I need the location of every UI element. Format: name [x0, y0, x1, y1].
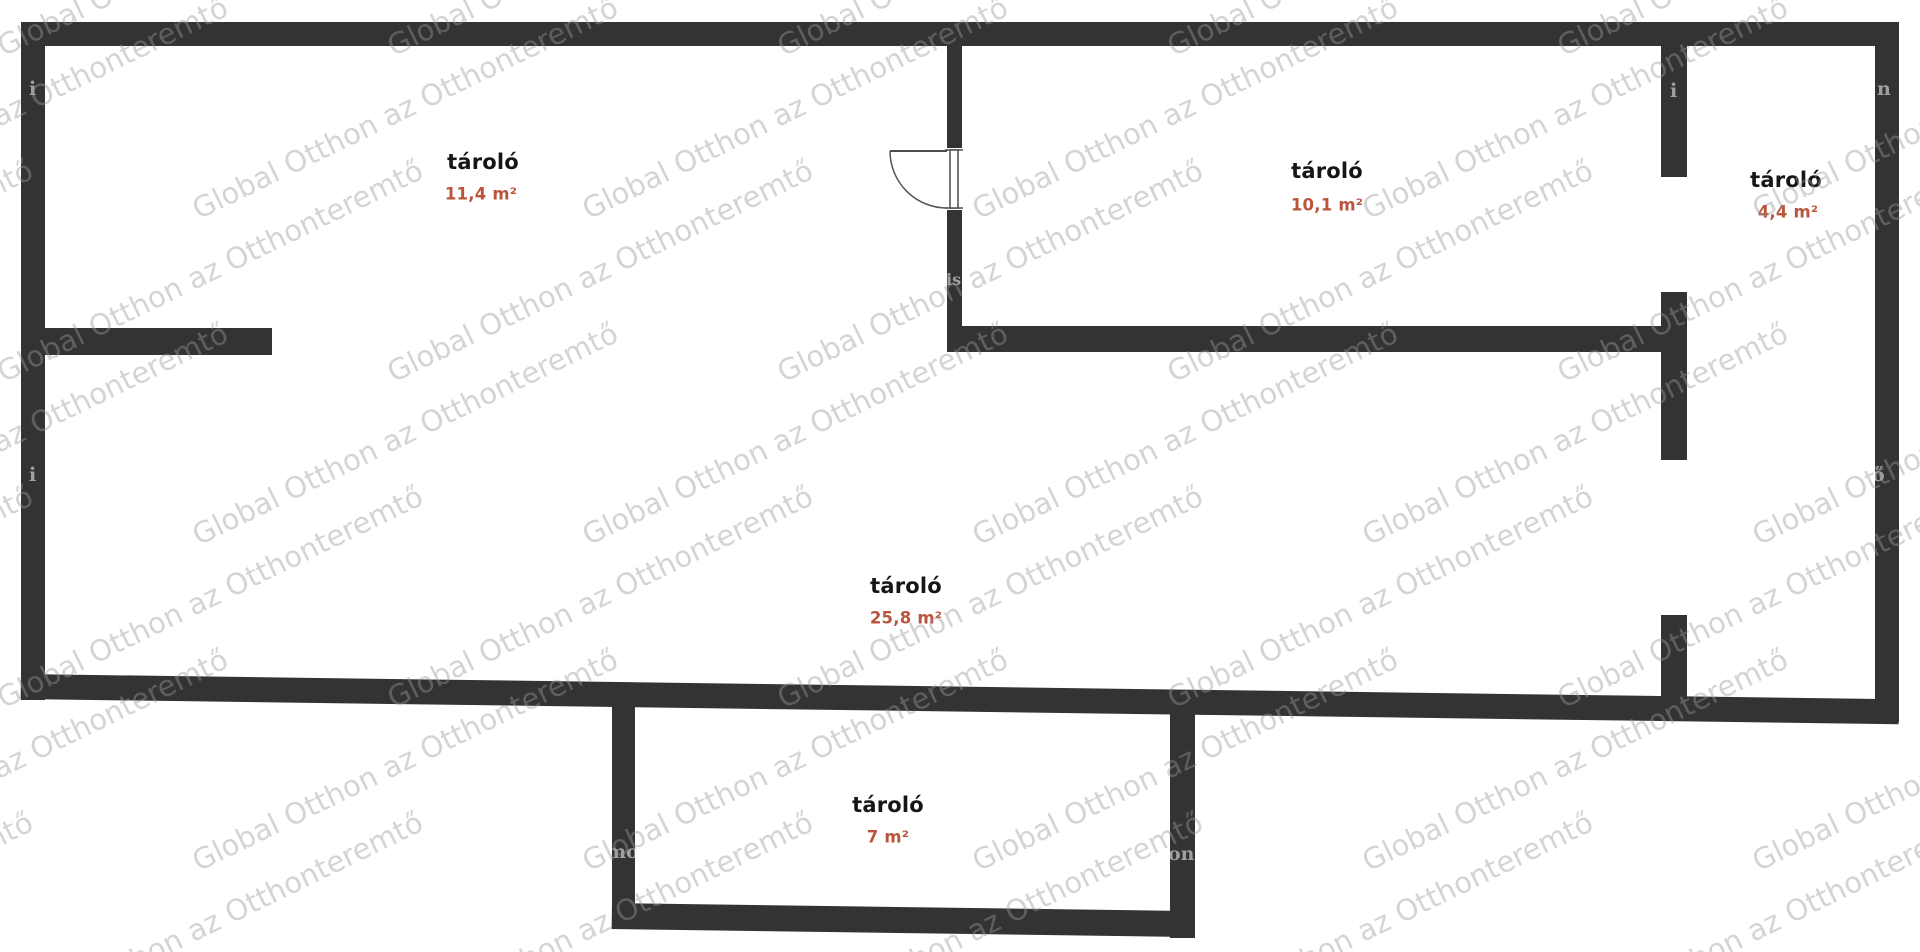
wall-watermark-fragment: ő — [1875, 466, 1885, 485]
wall-under-room-10-1 — [947, 326, 1687, 352]
watermark-text: Global Otthon az Otthonteremtő — [1162, 805, 1598, 952]
room-label-storage-10-1: tároló — [1291, 159, 1363, 183]
watermark-text: Global Otthon az Otthonteremtő — [1552, 153, 1920, 389]
wall-watermark-fragment: i — [1670, 82, 1677, 101]
wall-watermark-fragment: i — [29, 466, 36, 485]
wall-watermark-fragment: is — [947, 272, 961, 288]
wall-outer-top — [21, 22, 1899, 46]
room-name: tároló — [1750, 168, 1822, 192]
room-area-storage-25-8: 25,8 m² — [870, 609, 942, 628]
wall-watermark-fragment: mo — [612, 843, 635, 862]
wall-outer-left: i i — [21, 22, 45, 700]
watermark-text: Global Otthon az Otthonteremtő — [772, 479, 1208, 715]
wall-room7-left: mo — [612, 695, 635, 929]
door-frame — [950, 150, 958, 208]
wall-mid-vertical-top: i — [1661, 46, 1687, 177]
room-area-value: 25,8 m² — [870, 609, 942, 628]
room-area-value: 4,4 m² — [1758, 203, 1819, 222]
wall-outer-bottom — [21, 674, 1899, 724]
wall-mid-vertical-middle — [1661, 292, 1687, 460]
room-area-storage-10-1: 10,1 m² — [1291, 196, 1363, 215]
room-area-storage-11-4: 11,4 m² — [445, 185, 517, 204]
watermark-text: Global Otthon az Otthonteremtő — [1552, 805, 1920, 952]
room-area-value: 11,4 m² — [445, 185, 517, 204]
room-label-storage-4-4: tároló — [1750, 168, 1822, 192]
room-area-value: 10,1 m² — [1291, 196, 1363, 215]
room-name: tároló — [852, 793, 924, 817]
room-area-storage-7: 7 m² — [867, 828, 909, 847]
room-label-storage-11-4: tároló — [447, 150, 519, 174]
watermark-text: Global Otthon az Otthonteremtő — [1357, 642, 1793, 878]
wall-partition-door-upper — [947, 46, 962, 148]
watermark-text: Global Otthon az Otthonteremtő — [1162, 479, 1598, 715]
room-name: tároló — [870, 574, 942, 598]
wall-left-stub — [43, 328, 272, 355]
room-name: tároló — [447, 150, 519, 174]
floor-plan: i i n ő is i mo on tároló 11,4 m² — [0, 0, 1920, 952]
room-label-storage-7: tároló — [852, 793, 924, 817]
room-label-storage-25-8: tároló — [870, 574, 942, 598]
room-area-value: 7 m² — [867, 828, 909, 847]
watermark-text: Global Otthon az Otthonteremtő — [1552, 479, 1920, 715]
watermark-text: Global Otthon az Otthonteremtő — [772, 153, 1208, 389]
watermark-text: Global Otthon az Otthonteremtő — [1162, 153, 1598, 389]
wall-mid-vertical-bottom — [1661, 615, 1687, 700]
door-swing-arc — [890, 151, 947, 208]
room-area-storage-4-4: 4,4 m² — [1758, 203, 1819, 222]
wall-watermark-fragment: on — [1170, 845, 1195, 864]
wall-room7-right: on — [1170, 705, 1195, 938]
wall-room7-bottom — [612, 903, 1195, 937]
wall-outer-right: n ő — [1875, 22, 1899, 722]
wall-watermark-fragment: i — [29, 80, 36, 99]
watermark-text: Global Otthon az Otthonteremtő — [0, 805, 428, 952]
watermark-text: Global Otthon az Otthonteremtő — [577, 642, 1013, 878]
wall-watermark-fragment: n — [1877, 80, 1891, 99]
watermark-text: Global Otthon az Otthonteremtő — [0, 805, 38, 952]
room-name: tároló — [1291, 159, 1363, 183]
